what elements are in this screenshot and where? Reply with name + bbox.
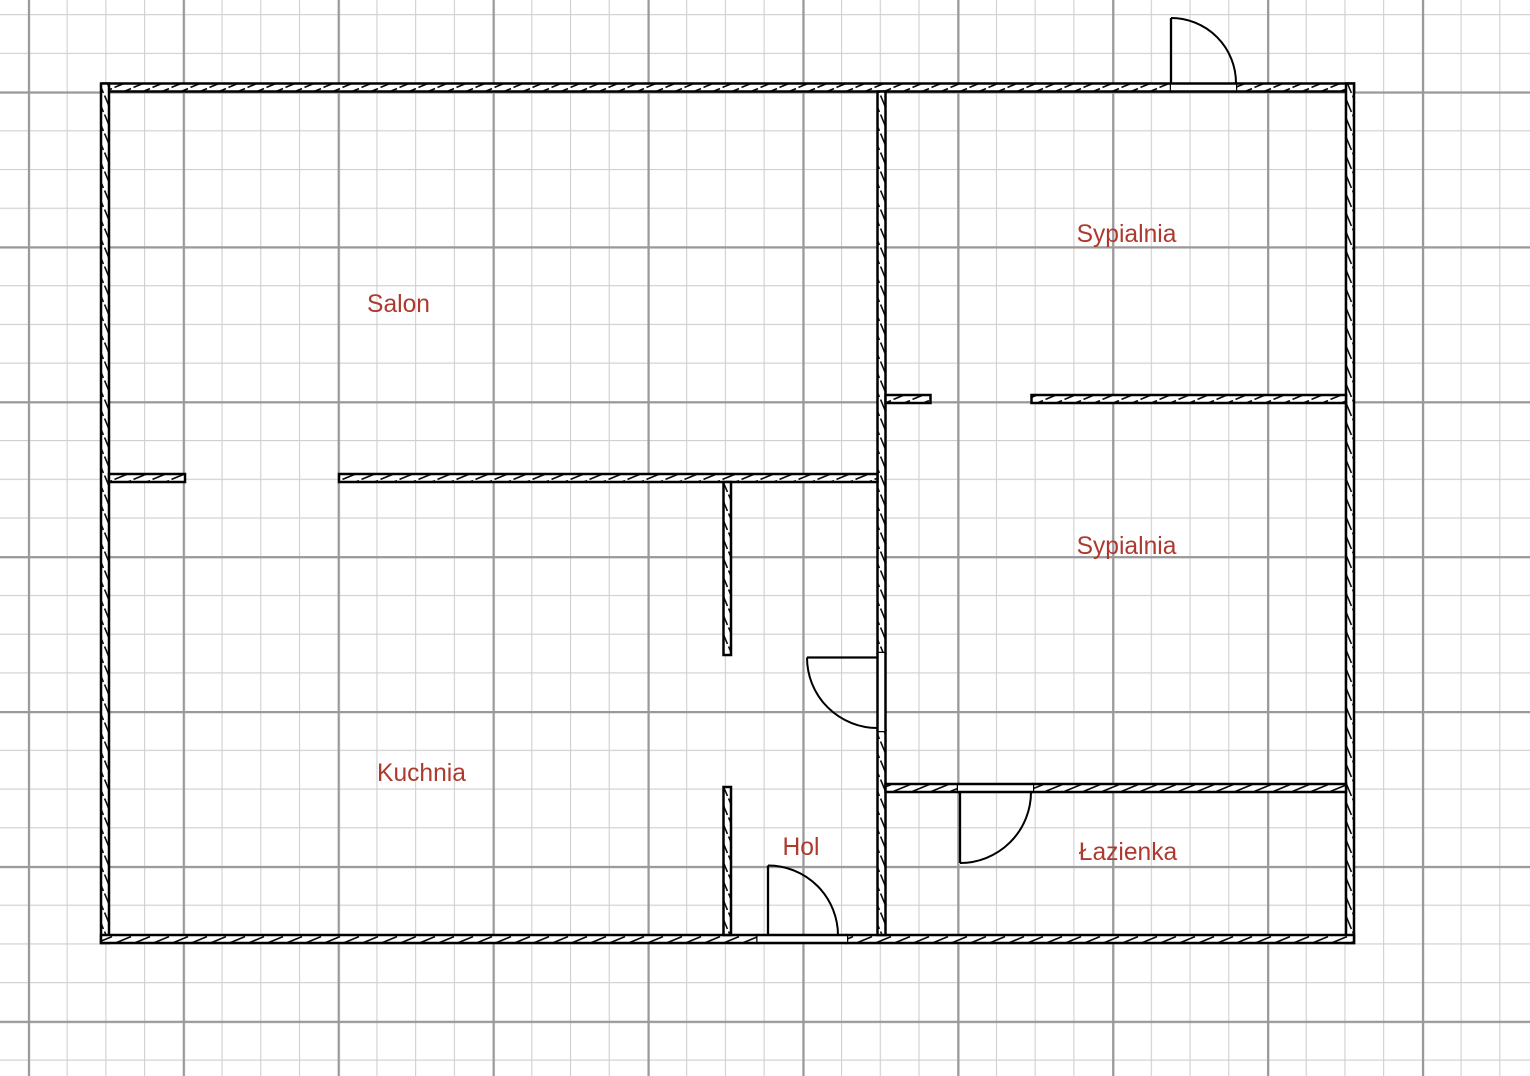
svg-text:Salon: Salon [367,291,430,318]
svg-text:Kuchnia: Kuchnia [377,760,466,787]
svg-text:Łazienka: Łazienka [1079,839,1178,866]
svg-text:Sypialnia: Sypialnia [1077,533,1177,560]
svg-text:Hol: Hol [783,834,820,861]
svg-text:Sypialnia: Sypialnia [1077,221,1177,248]
